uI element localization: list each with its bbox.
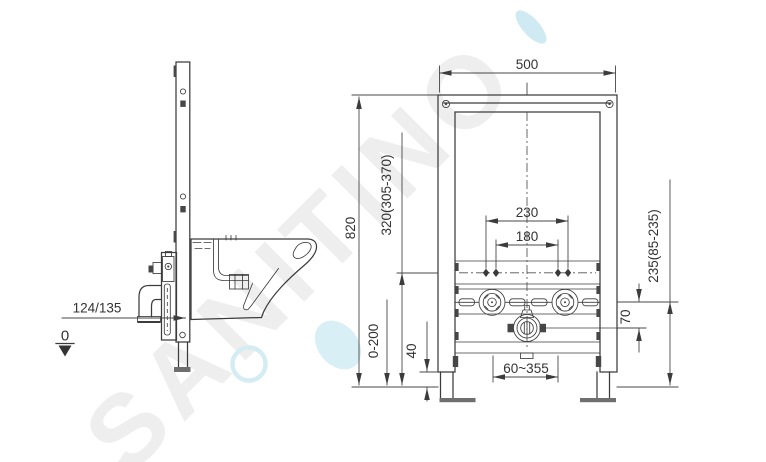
frame-foot-left: [440, 398, 476, 402]
post-slot: [180, 101, 185, 107]
dim-820-label: 820: [343, 217, 358, 240]
bracket-tab: [153, 263, 162, 274]
side-foot: [174, 367, 191, 372]
dim-0-200-label: 0-200: [366, 324, 381, 359]
dim-70-label: 70: [618, 309, 633, 324]
drain-elbow-outer: [139, 286, 161, 317]
floor-zero-arrow: [59, 346, 72, 357]
bidet-hidden-dashes: [193, 243, 211, 249]
watermark: SANITINO: [63, 6, 551, 462]
post-weld-tick: [174, 231, 177, 243]
post-slot: [180, 206, 185, 212]
post-hole: [180, 89, 185, 94]
post-weld-tick: [174, 66, 177, 78]
technical-drawing-page: SANITINO: [0, 0, 766, 462]
dim-230-label: 230: [516, 205, 539, 220]
frame-rails: [455, 261, 600, 353]
post-hole: [180, 194, 185, 199]
watermark-text: SANITINO: [63, 17, 539, 462]
dim-180-label: 180: [516, 229, 539, 244]
dim-320-label: 320(305-370): [379, 154, 394, 235]
frame-foot-right: [580, 398, 616, 402]
frame-corner-hole-dot: [608, 103, 610, 105]
bidet-frame-drawing: SANITINO: [0, 0, 766, 462]
connection-port-dot: [167, 265, 169, 267]
watermark-droplet-top: [511, 6, 552, 49]
drain-elbow-inner: [152, 300, 162, 317]
dim-500-label: 500: [516, 57, 539, 72]
dim-40-label: 40: [404, 343, 419, 358]
connection-box: [163, 257, 175, 282]
dim-60-355-label: 60~355: [503, 361, 548, 376]
floor-zero-label: 0: [61, 328, 69, 345]
dim-235-label: 235(85-235): [646, 209, 661, 283]
dim-wall-distance-label: 124/135: [73, 301, 122, 316]
bracket-nut: [149, 266, 154, 273]
frame-corner-hole-dot: [445, 103, 447, 105]
frame-bottom-tab: [521, 353, 534, 359]
